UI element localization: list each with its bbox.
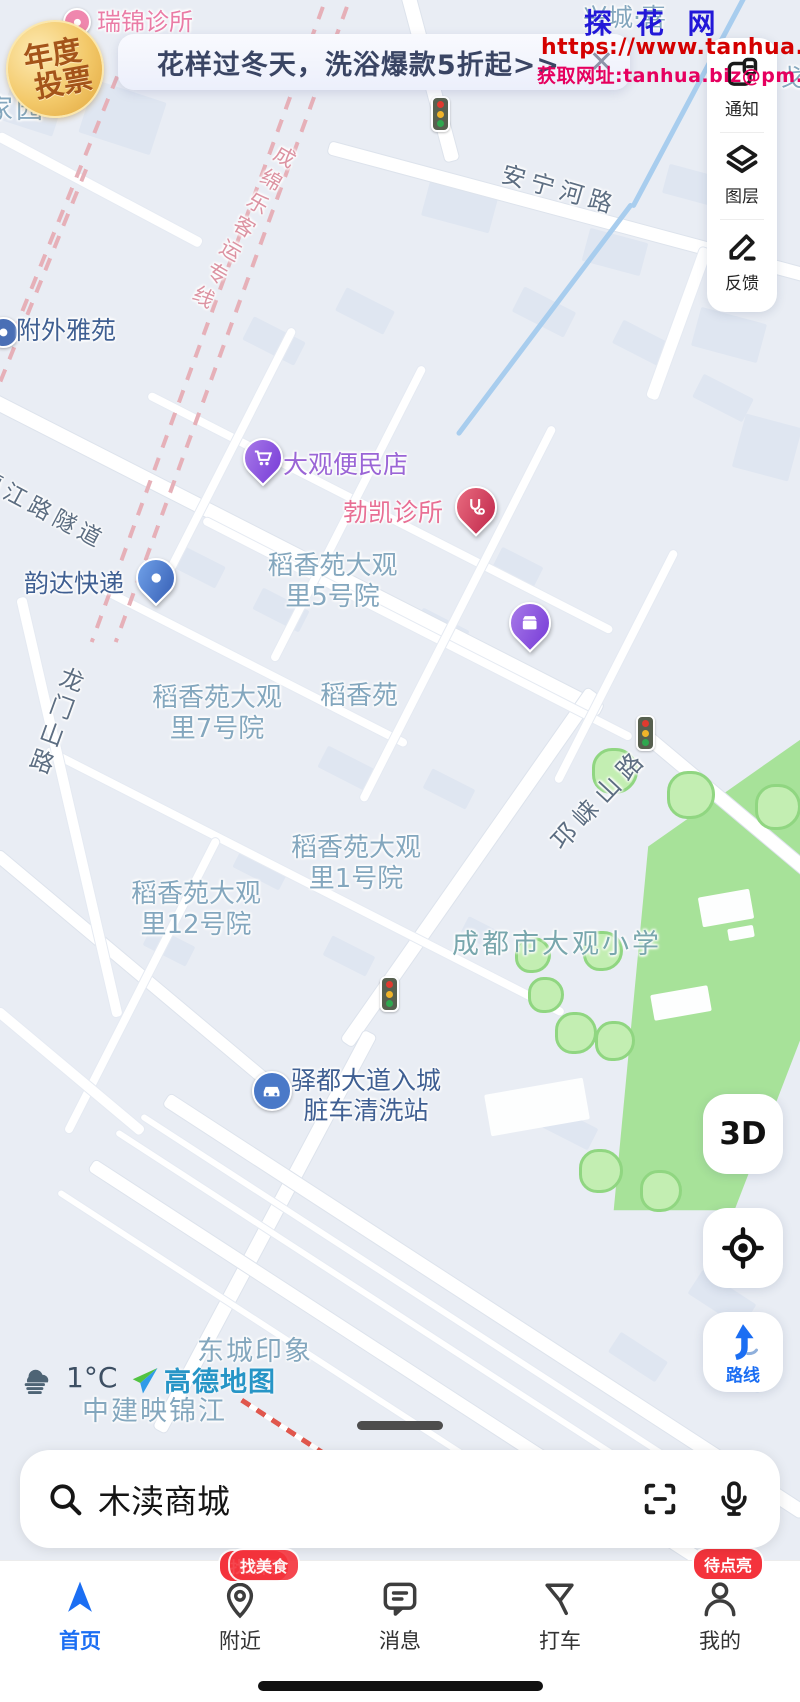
search-icon <box>46 1480 84 1518</box>
map-label[interactable]: 驿都大道入城 脏车清洗站 <box>285 1066 447 1126</box>
bottom-sheet-handle[interactable] <box>357 1421 443 1430</box>
search-bar[interactable]: 木渎商城 <box>20 1450 780 1548</box>
layers-icon <box>723 141 761 179</box>
person-icon <box>698 1577 742 1621</box>
nav-messages-label: 消息 <box>379 1625 421 1655</box>
store-pin-daguan[interactable] <box>243 438 279 474</box>
route-button[interactable]: 路线 <box>703 1312 783 1392</box>
pencil-icon <box>723 228 761 266</box>
map-building <box>691 307 767 363</box>
tree-icon <box>755 784 800 830</box>
promo-banner-text: 花样过冬天，洗浴爆款5折起>> <box>134 43 583 82</box>
nav-mine-badge: 待点亮 <box>692 1547 764 1581</box>
badge-line2: 投票 <box>32 63 94 103</box>
nav-home-label: 首页 <box>59 1625 101 1655</box>
railway-line <box>114 0 357 643</box>
map-label[interactable]: 附外雅苑 <box>16 316 116 346</box>
map-road <box>0 130 205 250</box>
map-building <box>335 287 395 335</box>
3d-label: 3D <box>719 1116 766 1152</box>
tree-icon <box>579 1149 623 1193</box>
weather-widget[interactable]: 1°C <box>18 1358 117 1396</box>
traffic-light-icon <box>380 976 399 1012</box>
amap-home-screen: 瑞锦诊所兴城·喜戈家园安宁河路成绵乐客运专线附外雅苑渠江路隧道大观便民店勃凯诊所… <box>0 0 800 1702</box>
divider <box>720 219 764 220</box>
map-label: 成都市大观小学 <box>452 929 662 961</box>
map-label: 稻香苑大观 里7号院 <box>132 683 302 745</box>
layers-label: 图层 <box>725 182 759 207</box>
clinic-pin-bokai[interactable] <box>455 486 493 524</box>
nav-mine-label: 我的 <box>699 1625 741 1655</box>
nav-mine[interactable]: 我的 待点亮 <box>640 1561 800 1702</box>
map-label: 稻香苑大观 里12号院 <box>112 879 280 941</box>
amap-plane-icon <box>126 1362 162 1398</box>
notifications-label: 通知 <box>725 95 759 120</box>
tree-icon <box>595 1021 635 1061</box>
map-label: 稻香苑 <box>320 681 398 712</box>
map-label: 稻香苑大观 里1号院 <box>276 833 436 895</box>
watermark-contact: 获取网址:tanhua.biz@pm.me <box>537 61 800 88</box>
nearby-badge-previous: 找美食 <box>228 1548 300 1582</box>
nav-home[interactable]: 首页 <box>0 1561 160 1702</box>
amap-logo: 高德地图 <box>126 1360 276 1399</box>
map-label: 稻香苑大观 里5号院 <box>240 551 425 613</box>
map-label[interactable]: 瑞锦诊所 <box>97 8 193 37</box>
crosshair-icon <box>721 1226 765 1270</box>
nav-nearby-label: 附近 <box>219 1625 261 1655</box>
traffic-light-icon <box>431 96 450 132</box>
scan-icon[interactable] <box>640 1479 680 1519</box>
3d-view-button[interactable]: 3D <box>703 1094 783 1174</box>
map-building <box>608 1332 668 1383</box>
microphone-icon[interactable] <box>714 1479 754 1519</box>
map-road <box>15 595 124 1019</box>
map-canvas[interactable]: 瑞锦诊所兴城·喜戈家园安宁河路成绵乐客运专线附外雅苑渠江路隧道大观便民店勃凯诊所… <box>0 0 800 1702</box>
home-indicator-bar[interactable] <box>258 1681 543 1691</box>
express-pin-yunda[interactable] <box>136 558 172 594</box>
cloud-fog-icon <box>18 1358 58 1396</box>
nav-taxi-label: 打车 <box>539 1625 581 1655</box>
map-label: 中建映锦江 <box>82 1396 227 1428</box>
map-building <box>732 413 800 481</box>
location-pin-icon <box>218 1577 262 1621</box>
divider <box>720 132 764 133</box>
tree-icon <box>640 1170 682 1212</box>
map-label: 渠江路隧道 <box>0 466 110 556</box>
map-building <box>423 768 476 809</box>
tree-icon <box>528 977 564 1013</box>
amap-logo-text: 高德地图 <box>164 1360 276 1399</box>
layers-button[interactable]: 图层 <box>723 137 761 215</box>
feedback-label: 反馈 <box>725 269 759 294</box>
tree-icon <box>667 771 715 819</box>
map-building <box>323 935 376 976</box>
message-icon <box>378 1577 422 1621</box>
watermark-url: https://www.tanhua.biz <box>541 35 800 60</box>
locate-button[interactable] <box>703 1208 783 1288</box>
map-building <box>692 374 754 423</box>
route-arrow-icon <box>724 1323 762 1363</box>
home-arrow-icon <box>58 1577 102 1621</box>
map-label[interactable]: 大观便民店 <box>283 450 408 480</box>
route-label: 路线 <box>726 1361 760 1386</box>
feedback-button[interactable]: 反馈 <box>723 224 761 302</box>
map-label[interactable]: 勃凯诊所 <box>343 498 443 528</box>
shop-pin-jiasheng[interactable] <box>509 602 547 640</box>
tree-icon <box>555 1012 597 1054</box>
traffic-light-icon <box>636 715 655 751</box>
flag-icon <box>538 1577 582 1621</box>
search-query-text[interactable]: 木渎商城 <box>98 1475 606 1523</box>
river-line <box>455 202 634 437</box>
temperature-value: 1°C <box>66 1361 117 1394</box>
map-label[interactable]: 韵达快递 <box>24 569 124 599</box>
